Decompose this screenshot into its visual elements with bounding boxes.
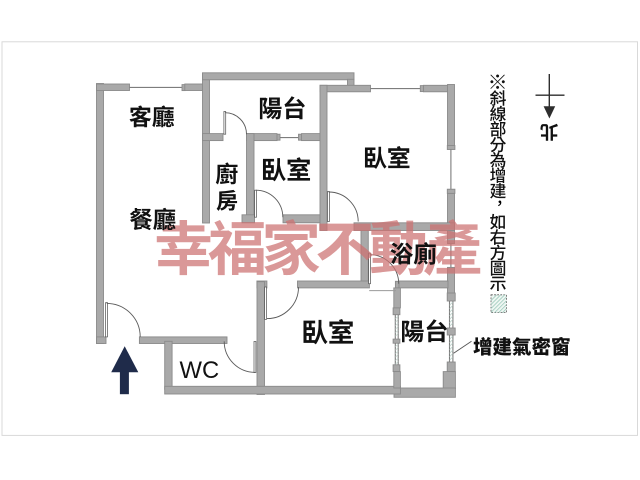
svg-text:WC: WC <box>180 357 220 384</box>
